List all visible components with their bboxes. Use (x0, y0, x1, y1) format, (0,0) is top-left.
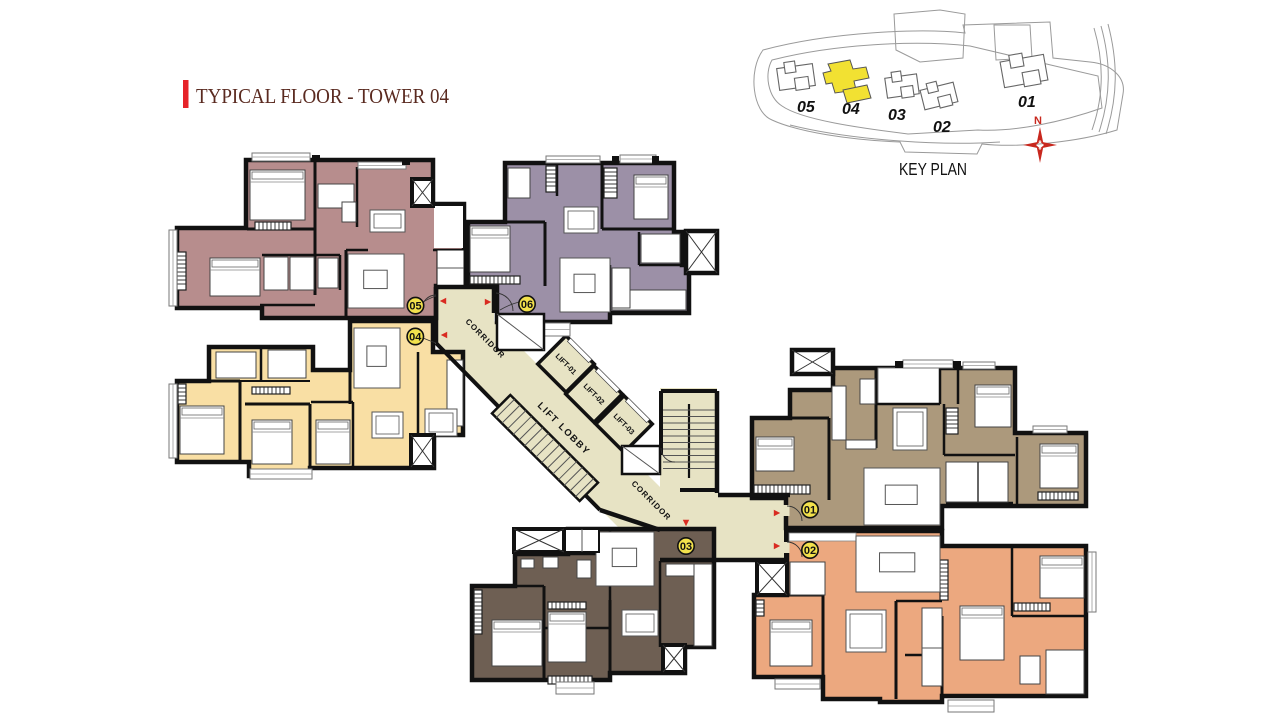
svg-text:N: N (1034, 115, 1042, 127)
svg-text:03: 03 (680, 541, 692, 553)
svg-text:KEY PLAN: KEY PLAN (899, 159, 967, 179)
svg-text:04: 04 (842, 101, 860, 118)
svg-text:01: 01 (1018, 94, 1036, 111)
svg-text:05: 05 (409, 300, 421, 312)
svg-text:TYPICAL FLOOR - TOWER 04: TYPICAL FLOOR - TOWER 04 (196, 84, 449, 108)
svg-text:02: 02 (804, 545, 816, 557)
svg-text:01: 01 (804, 504, 816, 516)
svg-text:05: 05 (797, 99, 816, 116)
svg-text:06: 06 (521, 299, 533, 311)
svg-text:04: 04 (409, 331, 422, 343)
svg-text:03: 03 (888, 107, 906, 124)
svg-text:02: 02 (933, 119, 951, 136)
